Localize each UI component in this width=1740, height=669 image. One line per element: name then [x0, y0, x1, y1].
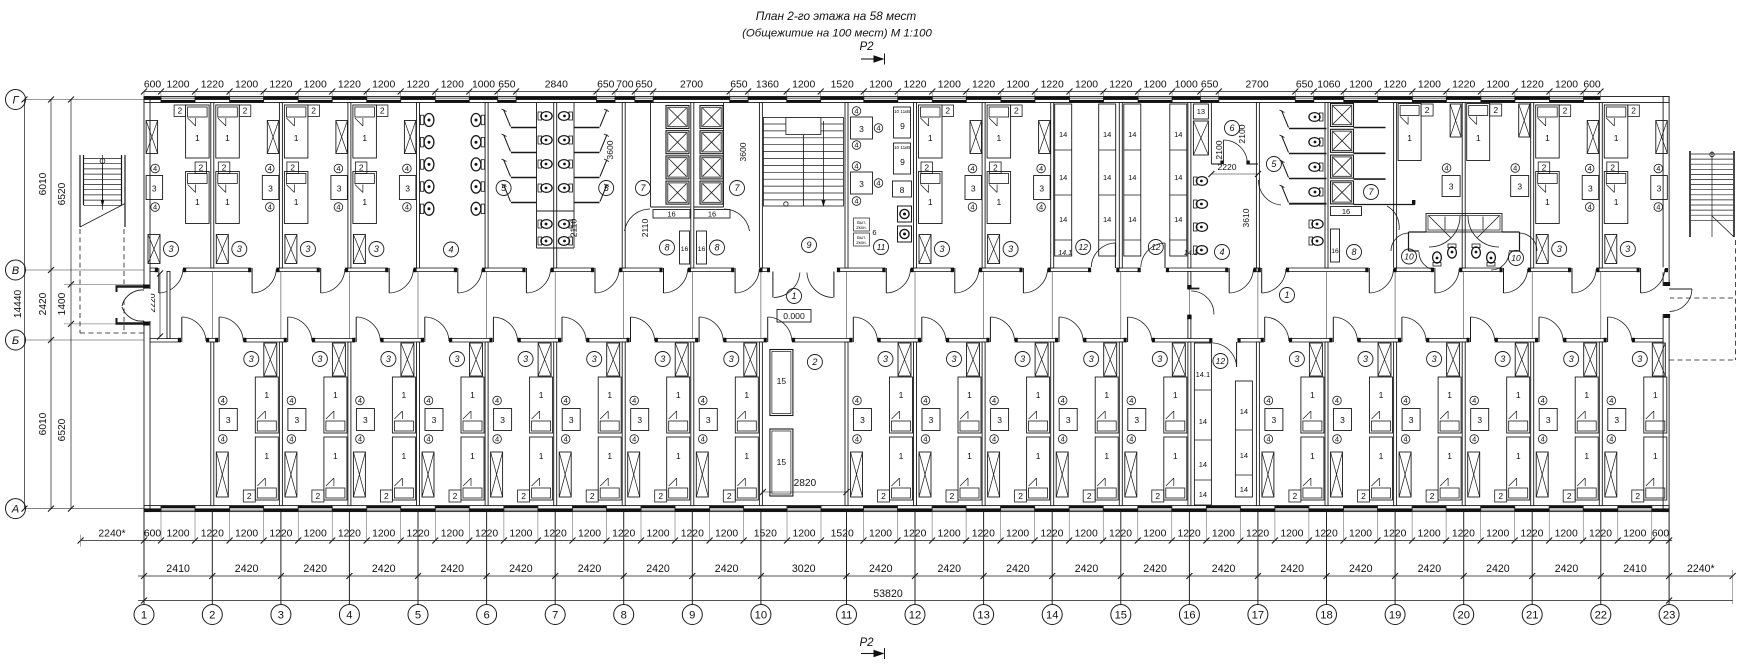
- svg-text:1: 1: [539, 390, 544, 400]
- svg-text:3: 3: [268, 184, 273, 194]
- svg-text:1200: 1200: [646, 529, 669, 540]
- svg-text:1400: 1400: [57, 292, 68, 315]
- svg-text:650: 650: [1296, 80, 1314, 91]
- svg-text:3: 3: [237, 244, 242, 254]
- svg-text:1220: 1220: [1521, 80, 1544, 91]
- svg-text:3: 3: [1517, 182, 1522, 192]
- svg-text:14: 14: [1059, 130, 1067, 139]
- svg-text:3: 3: [363, 415, 368, 425]
- svg-text:16: 16: [1183, 609, 1195, 621]
- svg-text:2700: 2700: [680, 80, 703, 91]
- svg-text:3: 3: [1500, 354, 1505, 364]
- svg-text:1220: 1220: [1041, 80, 1064, 91]
- svg-text:2420: 2420: [38, 292, 49, 315]
- svg-text:4: 4: [1129, 435, 1133, 444]
- svg-text:16: 16: [698, 246, 706, 253]
- svg-text:3: 3: [1294, 354, 1299, 364]
- svg-text:1200: 1200: [1006, 80, 1029, 91]
- svg-text:1: 1: [1173, 451, 1178, 461]
- svg-text:2420: 2420: [869, 563, 893, 575]
- svg-text:12: 12: [1216, 356, 1226, 366]
- svg-text:3: 3: [1569, 354, 1574, 364]
- svg-text:3: 3: [432, 415, 437, 425]
- svg-text:2: 2: [1563, 106, 1568, 116]
- svg-text:10 11кВ: 10 11кВ: [894, 109, 910, 114]
- svg-text:2: 2: [359, 163, 364, 173]
- svg-text:2100: 2100: [1214, 140, 1224, 159]
- svg-text:10: 10: [1511, 253, 1521, 263]
- svg-text:3: 3: [1449, 182, 1454, 192]
- svg-text:4: 4: [1609, 435, 1613, 444]
- svg-text:3: 3: [1039, 184, 1044, 194]
- svg-text:8: 8: [714, 243, 719, 253]
- svg-text:1: 1: [1379, 451, 1384, 461]
- svg-text:3: 3: [706, 415, 711, 425]
- svg-text:1200: 1200: [792, 529, 815, 540]
- svg-text:1200: 1200: [441, 80, 464, 91]
- svg-text:4: 4: [1266, 435, 1270, 444]
- svg-text:3020: 3020: [792, 563, 816, 575]
- svg-text:6010: 6010: [38, 172, 49, 195]
- svg-text:4: 4: [876, 179, 880, 188]
- svg-text:15: 15: [777, 457, 787, 467]
- svg-text:1: 1: [225, 197, 230, 207]
- svg-text:4: 4: [153, 203, 157, 212]
- svg-text:14: 14: [1174, 215, 1182, 224]
- svg-text:14: 14: [1128, 215, 1136, 224]
- svg-text:3: 3: [1089, 354, 1094, 364]
- svg-text:1200: 1200: [1280, 529, 1303, 540]
- svg-text:2700: 2700: [1246, 80, 1269, 91]
- svg-text:4: 4: [854, 107, 858, 116]
- svg-text:1200: 1200: [1555, 529, 1578, 540]
- svg-text:2: 2: [1542, 163, 1547, 173]
- svg-text:4: 4: [1588, 164, 1592, 173]
- svg-text:3: 3: [592, 354, 597, 364]
- svg-text:16: 16: [708, 210, 716, 219]
- svg-text:2: 2: [247, 491, 252, 501]
- svg-text:3: 3: [152, 184, 157, 194]
- svg-text:3: 3: [1614, 415, 1619, 425]
- svg-text:14: 14: [1199, 490, 1207, 499]
- svg-text:14: 14: [1199, 460, 1207, 469]
- svg-text:4: 4: [701, 396, 705, 405]
- svg-text:Р2: Р2: [859, 637, 874, 649]
- svg-text:0.000: 0.000: [783, 311, 805, 321]
- svg-text:1200: 1200: [1486, 529, 1509, 540]
- svg-text:1360: 1360: [756, 80, 779, 91]
- svg-text:2: 2: [658, 491, 663, 501]
- svg-text:1: 1: [1545, 197, 1550, 207]
- svg-text:4: 4: [855, 435, 859, 444]
- svg-text:14: 14: [1103, 215, 1111, 224]
- svg-text:(Общежитие на 100 мест) М 1:10: (Общежитие на 100 мест) М 1:100: [742, 28, 932, 40]
- svg-text:1: 1: [1036, 390, 1041, 400]
- svg-text:3: 3: [859, 179, 864, 189]
- svg-text:1000: 1000: [472, 80, 495, 91]
- svg-text:3: 3: [729, 354, 734, 364]
- svg-text:1: 1: [967, 451, 972, 461]
- svg-text:4: 4: [1219, 247, 1224, 257]
- svg-text:Г: Г: [12, 94, 19, 106]
- svg-text:3: 3: [1134, 415, 1139, 425]
- svg-text:2: 2: [590, 491, 595, 501]
- svg-text:1220: 1220: [903, 80, 926, 91]
- svg-text:650: 650: [597, 80, 615, 91]
- svg-text:2: 2: [924, 163, 929, 173]
- svg-text:4: 4: [632, 435, 636, 444]
- svg-text:Р2: Р2: [859, 41, 874, 53]
- svg-text:1200: 1200: [1418, 529, 1441, 540]
- svg-text:2420: 2420: [1212, 563, 1236, 575]
- svg-text:1: 1: [1310, 390, 1315, 400]
- svg-text:1: 1: [744, 451, 749, 461]
- svg-text:2420: 2420: [715, 563, 739, 575]
- svg-text:2420: 2420: [938, 563, 962, 575]
- svg-text:4: 4: [632, 396, 636, 405]
- svg-text:3: 3: [278, 609, 284, 621]
- svg-text:4: 4: [405, 164, 409, 173]
- svg-text:19: 19: [1389, 609, 1401, 621]
- svg-text:14: 14: [1199, 417, 1207, 426]
- svg-text:1220: 1220: [1452, 80, 1475, 91]
- svg-text:4: 4: [221, 435, 225, 444]
- svg-text:1200: 1200: [372, 80, 395, 91]
- svg-text:3: 3: [1477, 415, 1482, 425]
- svg-text:3: 3: [1066, 415, 1071, 425]
- svg-text:2420: 2420: [646, 563, 670, 575]
- svg-text:4: 4: [1129, 396, 1133, 405]
- svg-text:4: 4: [1609, 396, 1613, 405]
- svg-text:2: 2: [1293, 491, 1298, 501]
- svg-text:15: 15: [1115, 609, 1127, 621]
- svg-text:1200: 1200: [938, 529, 961, 540]
- svg-text:650: 650: [498, 80, 516, 91]
- svg-text:1: 1: [791, 291, 796, 301]
- svg-text:14: 14: [1240, 451, 1248, 460]
- svg-text:В: В: [12, 265, 20, 277]
- svg-text:1: 1: [294, 197, 299, 207]
- svg-text:Б: Б: [12, 335, 19, 347]
- svg-text:600: 600: [144, 80, 162, 91]
- svg-text:1520: 1520: [831, 80, 854, 91]
- svg-text:2: 2: [178, 106, 183, 116]
- svg-text:1220: 1220: [338, 80, 361, 91]
- svg-text:4: 4: [1266, 396, 1270, 405]
- svg-text:2420: 2420: [578, 563, 602, 575]
- svg-text:3: 3: [1409, 415, 1414, 425]
- svg-text:14: 14: [1059, 215, 1067, 224]
- svg-text:4: 4: [153, 164, 157, 173]
- svg-text:4: 4: [289, 396, 293, 405]
- svg-text:4: 4: [1404, 396, 1408, 405]
- svg-text:16: 16: [1331, 248, 1339, 255]
- svg-text:1: 1: [1584, 390, 1589, 400]
- svg-text:23: 23: [1663, 609, 1675, 621]
- svg-text:2420: 2420: [1280, 563, 1304, 575]
- svg-text:1: 1: [1104, 390, 1109, 400]
- svg-text:9: 9: [689, 609, 695, 621]
- svg-text:1: 1: [899, 451, 904, 461]
- svg-text:4: 4: [1445, 164, 1449, 173]
- svg-text:2420: 2420: [1143, 563, 1167, 575]
- svg-text:1: 1: [1516, 390, 1521, 400]
- svg-text:1200: 1200: [1349, 529, 1372, 540]
- svg-text:4: 4: [1541, 435, 1545, 444]
- svg-text:4: 4: [1656, 164, 1660, 173]
- svg-text:650: 650: [730, 80, 748, 91]
- svg-text:1: 1: [264, 390, 269, 400]
- svg-text:1: 1: [225, 133, 230, 143]
- svg-text:2: 2: [209, 609, 215, 621]
- svg-text:1: 1: [402, 451, 407, 461]
- svg-text:4: 4: [336, 164, 340, 173]
- svg-text:14: 14: [1174, 173, 1182, 182]
- svg-text:6520: 6520: [57, 418, 68, 441]
- svg-text:10: 10: [1404, 252, 1414, 262]
- svg-text:4: 4: [923, 396, 927, 405]
- svg-text:3: 3: [660, 354, 665, 364]
- svg-text:3600: 3600: [738, 142, 748, 161]
- svg-text:5: 5: [415, 609, 421, 621]
- svg-text:2: 2: [1430, 491, 1435, 501]
- svg-text:4: 4: [992, 435, 996, 444]
- svg-text:3: 3: [883, 354, 888, 364]
- svg-text:1200: 1200: [372, 529, 395, 540]
- svg-text:1220: 1220: [1384, 80, 1407, 91]
- svg-text:2420: 2420: [1486, 563, 1510, 575]
- svg-text:2420: 2420: [509, 563, 533, 575]
- svg-text:4: 4: [876, 124, 880, 133]
- svg-text:4: 4: [854, 141, 858, 150]
- svg-text:1200: 1200: [235, 529, 258, 540]
- svg-text:8: 8: [664, 243, 669, 253]
- svg-text:1: 1: [362, 133, 367, 143]
- svg-text:1: 1: [470, 451, 475, 461]
- svg-text:4: 4: [448, 245, 453, 255]
- svg-text:2кон.: 2кон.: [856, 240, 867, 245]
- svg-text:8: 8: [1351, 247, 1356, 257]
- svg-text:16: 16: [667, 210, 675, 219]
- svg-text:3: 3: [951, 354, 956, 364]
- svg-text:14: 14: [1240, 407, 1248, 416]
- svg-text:2: 2: [453, 491, 458, 501]
- svg-text:14: 14: [1103, 130, 1111, 139]
- svg-text:4: 4: [1039, 203, 1043, 212]
- svg-text:4: 4: [1335, 435, 1339, 444]
- svg-text:1: 1: [928, 133, 933, 143]
- svg-text:12: 12: [1078, 242, 1088, 252]
- svg-text:14: 14: [1128, 130, 1136, 139]
- svg-text:2220: 2220: [1217, 162, 1236, 172]
- svg-text:3: 3: [569, 415, 574, 425]
- svg-text:1200: 1200: [1006, 529, 1029, 540]
- svg-text:1200: 1200: [441, 529, 464, 540]
- svg-text:600: 600: [1583, 80, 1601, 91]
- svg-text:1200: 1200: [166, 529, 189, 540]
- svg-text:1000: 1000: [1175, 80, 1198, 91]
- svg-text:2240*: 2240*: [1687, 563, 1715, 575]
- svg-text:2: 2: [199, 163, 204, 173]
- svg-text:3: 3: [374, 244, 379, 254]
- svg-text:1200: 1200: [869, 80, 892, 91]
- svg-text:3: 3: [1637, 354, 1642, 364]
- svg-text:4: 4: [358, 435, 362, 444]
- svg-text:1: 1: [1614, 197, 1619, 207]
- svg-text:7: 7: [552, 609, 558, 621]
- svg-text:700: 700: [616, 80, 634, 91]
- svg-text:3: 3: [1432, 354, 1437, 364]
- svg-text:А: А: [11, 503, 19, 515]
- svg-text:2: 2: [222, 163, 227, 173]
- svg-text:3: 3: [226, 415, 231, 425]
- svg-text:План 2-го этажа на 58 мест: План 2-го этажа на 58 мест: [756, 9, 917, 23]
- svg-text:1: 1: [362, 197, 367, 207]
- svg-text:2: 2: [1610, 163, 1615, 173]
- svg-text:1: 1: [333, 451, 338, 461]
- svg-text:3: 3: [523, 354, 528, 364]
- svg-text:1220: 1220: [972, 80, 995, 91]
- svg-text:2: 2: [1567, 491, 1572, 501]
- svg-text:2240*: 2240*: [98, 529, 125, 540]
- svg-text:6: 6: [1229, 123, 1234, 133]
- svg-text:3: 3: [1157, 354, 1162, 364]
- svg-text:4: 4: [923, 435, 927, 444]
- svg-text:4: 4: [495, 396, 499, 405]
- svg-text:14: 14: [1046, 609, 1058, 621]
- svg-text:4: 4: [426, 435, 430, 444]
- svg-text:8: 8: [900, 185, 905, 195]
- svg-text:1200: 1200: [1212, 529, 1235, 540]
- svg-text:1200: 1200: [792, 80, 815, 91]
- svg-text:4: 4: [1513, 164, 1517, 173]
- svg-text:4: 4: [1061, 396, 1065, 405]
- svg-text:2: 2: [1635, 491, 1640, 501]
- svg-text:3: 3: [997, 415, 1002, 425]
- svg-text:18: 18: [1320, 609, 1332, 621]
- svg-text:6: 6: [483, 609, 489, 621]
- svg-text:2: 2: [727, 491, 732, 501]
- svg-text:1: 1: [1447, 451, 1452, 461]
- svg-text:2: 2: [811, 357, 817, 367]
- svg-text:2820: 2820: [794, 478, 817, 489]
- svg-text:9: 9: [900, 157, 905, 167]
- svg-text:4: 4: [854, 162, 858, 171]
- svg-text:1200: 1200: [1623, 529, 1646, 540]
- svg-text:3: 3: [637, 415, 642, 425]
- svg-text:6520: 6520: [57, 182, 68, 205]
- svg-text:1: 1: [1584, 451, 1589, 461]
- svg-text:4: 4: [1061, 435, 1065, 444]
- svg-text:1: 1: [195, 133, 200, 143]
- svg-text:1220: 1220: [406, 80, 429, 91]
- svg-text:1200: 1200: [1075, 80, 1098, 91]
- svg-text:600: 600: [144, 529, 162, 540]
- svg-text:1: 1: [1407, 133, 1412, 143]
- svg-text:4: 4: [1039, 164, 1043, 173]
- svg-text:1: 1: [744, 390, 749, 400]
- svg-text:2: 2: [950, 491, 955, 501]
- svg-text:1: 1: [1284, 290, 1289, 300]
- svg-text:4: 4: [564, 396, 568, 405]
- svg-text:1: 1: [607, 390, 612, 400]
- svg-text:650: 650: [1201, 80, 1219, 91]
- svg-text:2420: 2420: [235, 563, 259, 575]
- svg-text:6010: 6010: [38, 412, 49, 435]
- svg-text:4: 4: [221, 396, 225, 405]
- svg-text:1: 1: [967, 390, 972, 400]
- svg-text:4: 4: [336, 203, 340, 212]
- svg-text:16: 16: [1342, 207, 1350, 216]
- svg-text:13: 13: [977, 609, 989, 621]
- svg-text:1: 1: [264, 451, 269, 461]
- svg-text:4: 4: [1472, 396, 1476, 405]
- svg-text:3: 3: [939, 244, 944, 254]
- svg-text:3: 3: [454, 354, 459, 364]
- svg-text:11: 11: [877, 242, 886, 252]
- svg-text:1200: 1200: [304, 529, 327, 540]
- svg-text:2420: 2420: [1418, 563, 1442, 575]
- svg-text:1200: 1200: [715, 529, 738, 540]
- svg-text:4: 4: [1335, 396, 1339, 405]
- svg-text:11: 11: [841, 609, 853, 621]
- svg-text:1200: 1200: [1486, 80, 1509, 91]
- svg-text:1: 1: [1379, 390, 1384, 400]
- svg-text:1200: 1200: [938, 80, 961, 91]
- svg-text:6: 6: [872, 228, 876, 237]
- svg-text:2: 2: [1498, 491, 1503, 501]
- svg-text:2420: 2420: [372, 563, 396, 575]
- svg-text:3: 3: [1272, 415, 1277, 425]
- svg-text:14: 14: [1103, 173, 1111, 182]
- svg-text:2: 2: [243, 106, 248, 116]
- svg-text:4: 4: [268, 203, 272, 212]
- svg-text:1520: 1520: [754, 529, 777, 540]
- svg-text:3600: 3600: [605, 140, 615, 159]
- svg-text:3: 3: [249, 354, 254, 364]
- svg-text:1: 1: [195, 197, 200, 207]
- svg-text:2420: 2420: [1006, 563, 1030, 575]
- svg-text:1: 1: [470, 390, 475, 400]
- svg-text:22: 22: [1595, 609, 1607, 621]
- svg-text:3: 3: [1020, 354, 1025, 364]
- svg-text:1: 1: [539, 451, 544, 461]
- svg-text:16: 16: [681, 246, 689, 253]
- svg-text:9: 9: [806, 240, 811, 250]
- svg-text:2420: 2420: [303, 563, 327, 575]
- svg-text:10: 10: [755, 609, 767, 621]
- svg-text:1520: 1520: [831, 529, 854, 540]
- svg-text:13: 13: [1197, 107, 1205, 116]
- svg-text:2: 2: [1087, 491, 1092, 501]
- svg-text:2: 2: [316, 491, 321, 501]
- svg-text:1200: 1200: [578, 529, 601, 540]
- svg-text:10 11кВ: 10 11кВ: [894, 145, 910, 150]
- svg-text:1: 1: [1653, 451, 1658, 461]
- svg-text:17: 17: [1252, 609, 1264, 621]
- svg-text:3: 3: [1588, 184, 1593, 194]
- svg-text:2: 2: [1425, 105, 1430, 115]
- svg-text:1060: 1060: [1317, 80, 1340, 91]
- svg-text:2: 2: [1014, 106, 1019, 116]
- svg-text:2840: 2840: [545, 80, 568, 91]
- svg-text:4: 4: [405, 203, 409, 212]
- svg-text:4: 4: [992, 396, 996, 405]
- svg-text:3: 3: [295, 415, 300, 425]
- svg-text:14: 14: [1240, 485, 1248, 494]
- svg-text:4: 4: [1404, 435, 1408, 444]
- svg-text:1: 1: [1310, 451, 1315, 461]
